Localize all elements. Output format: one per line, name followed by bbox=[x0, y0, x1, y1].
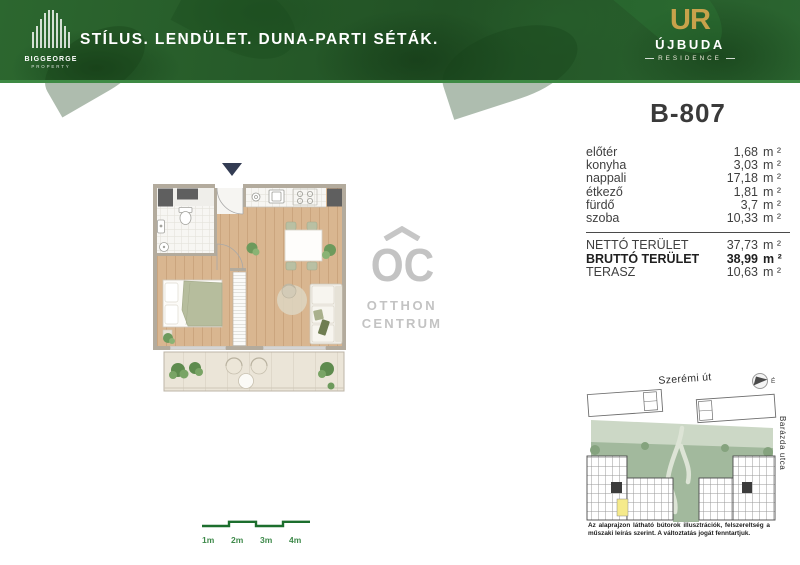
scale-bar-icon bbox=[200, 518, 312, 528]
unit-id: B-807 bbox=[586, 98, 790, 129]
floor-plan bbox=[140, 160, 368, 400]
total-row-brutto: BRUTTÓ TERÜLET 38,99 m ² bbox=[586, 253, 790, 266]
unit-details: B-807 előtér 1,68 m ² konyha 3,03 m ² na… bbox=[586, 98, 790, 279]
room-row: nappali 17,18 m ² bbox=[586, 172, 790, 185]
biggeorge-logo: BIGGEORGE PROPERTY bbox=[16, 8, 86, 69]
sofa bbox=[310, 284, 342, 344]
street-label-barazda: Barázda utca bbox=[778, 416, 787, 470]
divider-dash bbox=[726, 58, 735, 59]
ur-monogram: UR bbox=[670, 4, 710, 36]
header-banner: BIGGEORGE PROPERTY STÍLUS. LENDÜLET. DUN… bbox=[0, 0, 800, 80]
divider-dash bbox=[645, 58, 654, 59]
oc-monogram: OC bbox=[370, 241, 433, 289]
scale-labels: 1m 2m 3m 4m bbox=[200, 535, 316, 545]
ujbuda-residence-logo: UR ÚJBUDA RESIDENCE bbox=[638, 4, 742, 62]
room-row: étkező 1,81 m ² bbox=[586, 186, 790, 199]
ujbuda-name: ÚJBUDA bbox=[655, 37, 725, 52]
leaf-decoration bbox=[433, 10, 588, 120]
biggeorge-sub: PROPERTY bbox=[16, 64, 86, 69]
residence-sub: RESIDENCE bbox=[658, 55, 722, 62]
room-table: előtér 1,68 m ² konyha 3,03 m ² nappali … bbox=[586, 146, 790, 225]
wardrobe bbox=[233, 272, 246, 346]
total-row-terasz: TERASZ 10,63 m ² bbox=[586, 266, 790, 279]
total-row-netto: NETTÓ TERÜLET 37,73 m ² bbox=[586, 239, 790, 252]
north-label: É bbox=[771, 378, 775, 385]
biggeorge-name: BIGGEORGE bbox=[16, 56, 86, 63]
armchair bbox=[282, 284, 296, 298]
entrance-arrow-icon bbox=[222, 163, 242, 176]
table-divider bbox=[586, 232, 790, 233]
unit-highlight bbox=[617, 499, 628, 516]
brochure-page: BIGGEORGE PROPERTY STÍLUS. LENDÜLET. DUN… bbox=[0, 0, 800, 565]
scale-bar: 1m 2m 3m 4m bbox=[200, 515, 316, 545]
streetside-buildings bbox=[587, 389, 775, 422]
centrum-label: CENTRUM bbox=[362, 316, 442, 331]
room-row: szoba 10,33 m ² bbox=[586, 212, 790, 225]
otthon-label: OTTHON bbox=[367, 298, 437, 313]
totals-table: NETTÓ TERÜLET 37,73 m ² BRUTTÓ TERÜLET 3… bbox=[586, 239, 790, 279]
otthon-centrum-watermark: OC OTTHON CENTRUM bbox=[352, 226, 452, 331]
header-divider bbox=[0, 80, 800, 83]
disclaimer-text: Az alaprajzon látható bútorok illusztrác… bbox=[588, 522, 770, 539]
site-map bbox=[585, 386, 777, 522]
biggeorge-logo-icon bbox=[28, 8, 74, 50]
header-tagline: STÍLUS. LENDÜLET. DUNA-PARTI SÉTÁK. bbox=[80, 31, 439, 49]
site-plan: Szerémi út É bbox=[585, 372, 797, 522]
